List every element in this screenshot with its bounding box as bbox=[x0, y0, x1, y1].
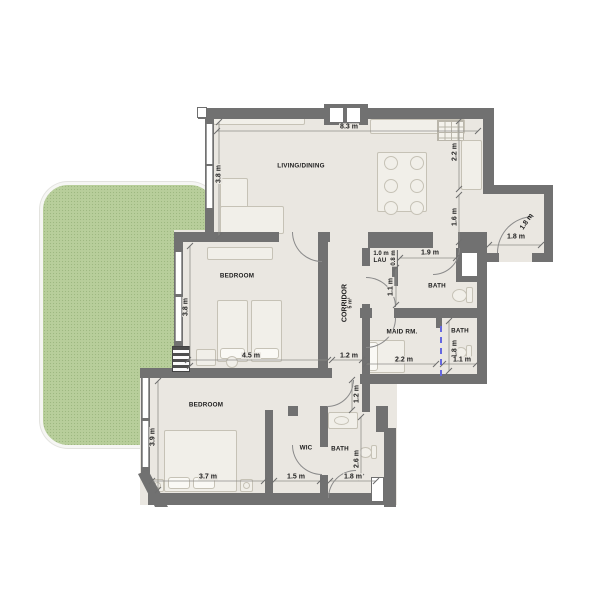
room-label-bedroom-2: BEDROOM bbox=[188, 403, 224, 410]
dim-bedroom1-depth: 3.8 m bbox=[182, 297, 189, 317]
room-label-living-dining: LIVING/DINING bbox=[276, 164, 325, 171]
dim-hall-depth: 1.6 m bbox=[451, 207, 458, 227]
room-label-bath-3: BATH bbox=[330, 447, 350, 454]
dim-bedroom2-width: 3.7 m bbox=[198, 473, 218, 480]
dim-bath1-depth: 1.1 m bbox=[387, 277, 394, 297]
dim-bath1-width: 1.9 m bbox=[420, 249, 440, 256]
dim-laundry-depth: 0.8 m bbox=[391, 249, 397, 266]
dim-laundry-width: 1.0 m bbox=[372, 251, 389, 257]
dim-corridor-depth: 1.2 m bbox=[353, 384, 360, 404]
room-label-corridor: CORRIDOR 5 m² bbox=[342, 283, 355, 323]
room-label-laundry: LAU bbox=[373, 258, 388, 264]
dim-bedroom2-depth: 3.9 m bbox=[149, 427, 156, 447]
dim-bath3-width: 1.8 m bbox=[343, 473, 363, 480]
dim-bath3-depth: 2.6 m bbox=[353, 449, 360, 469]
dim-bedroom1-width: 4.5 m bbox=[241, 352, 261, 359]
dim-entry-width: 1.8 m bbox=[506, 233, 526, 240]
dim-bath2-width: 1.1 m bbox=[452, 356, 472, 363]
corridor-area: 5 m² bbox=[349, 284, 355, 322]
dim-corridor-width: 1.2 m bbox=[339, 352, 359, 359]
room-label-bath-2: BATH bbox=[450, 329, 470, 336]
room-label-maid: MAID RM. bbox=[386, 330, 419, 337]
chamfer-wall bbox=[138, 470, 168, 507]
dim-living-depth: 3.8 m bbox=[215, 164, 222, 184]
dim-kitchen-depth: 2.2 m bbox=[451, 142, 458, 162]
dim-maid-width: 2.2 m bbox=[394, 356, 414, 363]
floor-plan: LIVING/DINING 8.3 m 3.8 m 2.2 m 1.6 m 1.… bbox=[0, 0, 600, 600]
dim-living-width: 8.3 m bbox=[339, 123, 359, 130]
room-label-bath-1: BATH bbox=[427, 284, 447, 291]
room-label-wic: WIC bbox=[299, 446, 314, 453]
dimension-line-layer bbox=[0, 0, 600, 600]
room-label-bedroom-1: BEDROOM bbox=[219, 274, 255, 281]
dim-wic-width: 1.5 m bbox=[286, 473, 306, 480]
